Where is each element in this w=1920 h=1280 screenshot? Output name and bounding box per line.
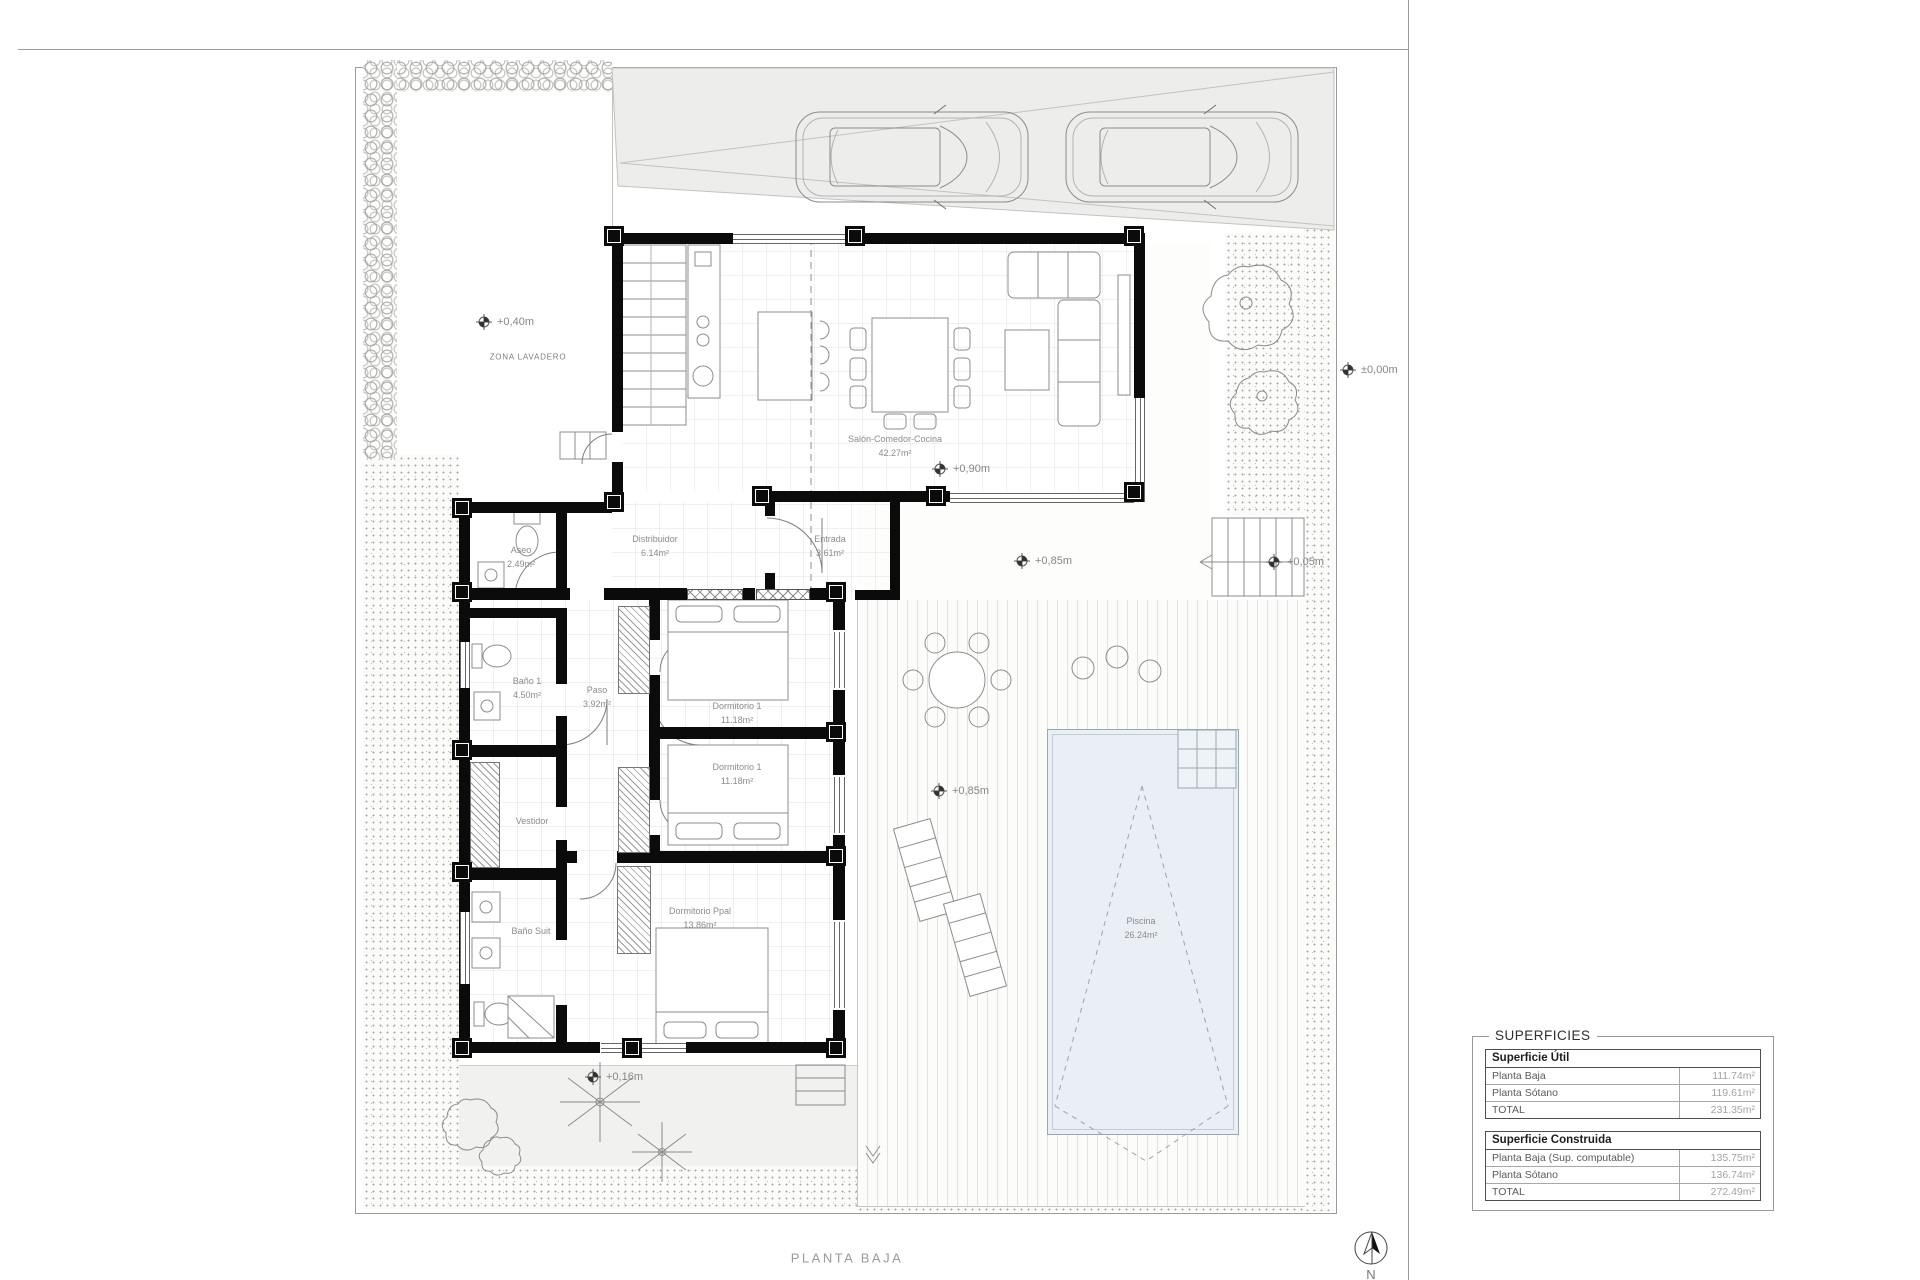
sun-lounger [944,894,1007,997]
room-label-entrada: Entrada3.61m² [814,533,846,561]
room-label-bano1: Baño 14.50m² [513,675,542,703]
driveway [612,68,1334,230]
wardrobe-dorm1 [618,606,650,694]
tv-unit [1118,275,1130,395]
vent-window [756,589,810,600]
benchmark-icon [476,314,492,330]
table-row: Planta Baja (Sup. computable) 135.75m² [1486,1150,1760,1167]
benchmark-icon [585,1069,601,1085]
wardrobe-principal [617,866,651,954]
benchmark-icon [931,783,947,799]
pool-lane-lines [1055,786,1228,1161]
level-marker-terraza: +0,85m [931,783,989,799]
staircase [617,245,686,425]
north-arrow-icon: N [1340,1218,1404,1280]
patio-poufs [1072,646,1161,682]
window-principal-south [601,1043,686,1053]
room-label-dormitorio2: Dormitorio 111.18m² [712,761,761,789]
window-north [733,234,857,244]
level-marker-jardin: +0,16m [585,1069,643,1085]
window-principal-east [834,922,845,1008]
tree-icon [1203,265,1298,434]
table-row: Planta Sótano 136.74m² [1486,1167,1760,1184]
bed-dormitorio-1 [668,600,788,700]
pool-skimmer-icon [866,1146,880,1163]
benchmark-icon [932,461,948,477]
window-dorm2 [834,777,845,833]
superficie-util-box: Superficie Útil Planta Baja 111.74m² Pla… [1485,1049,1761,1119]
exterior-steps-garden [796,1065,845,1105]
level-marker-salon: +0,90m [932,461,990,477]
sheet-title: PLANTA BAJA [791,1251,904,1266]
room-label-banosuit: Baño Suit [511,925,550,939]
room-label-paso: Paso3.92m² [583,684,611,712]
level-marker-porche: +0,85m [1014,553,1072,569]
room-label-principal: Dormitorio Ppal13.86m² [669,905,731,933]
room-label-piscina: Piscina26.24m² [1124,915,1157,943]
dining-table [850,318,970,429]
table-section-header: Superficie Útil [1486,1050,1760,1068]
kitchen-counter [688,245,720,398]
level-marker-lavadero: +0,40m [476,314,534,330]
pool-steps [1178,730,1236,788]
room-label-dormitorio1: Dormitorio 111.18m² [712,700,761,728]
wardrobe-dorm2 [618,767,650,853]
bed-dormitorio-2 [668,745,788,845]
patio-table [903,633,1011,727]
room-label-vestidor: Vestidor [516,815,549,829]
bush-icon [442,1099,521,1175]
table-row: Planta Baja 111.74m² [1486,1068,1760,1085]
wardrobe-vestidor [470,762,500,868]
areas-table: SUPERFICIES Superficie Útil Planta Baja … [1472,1036,1774,1211]
table-row: Planta Sótano 119.61m² [1486,1085,1760,1102]
room-label-distribuidor: Distribuidor6.14m² [632,533,678,561]
sofa [1005,252,1100,426]
areas-table-title: SUPERFICIES [1489,1028,1597,1043]
window-bath1 [460,642,470,688]
level-marker-escalera: +0,05m [1266,554,1324,570]
north-letter: N [1366,1267,1375,1280]
table-section-header: Superficie Construida [1486,1132,1760,1150]
floor-plan-sheet: ZONA LAVADERO Salón-Comedor-Cocina42.27m… [0,0,1920,1280]
superficie-construida-box: Superficie Construida Planta Baja (Sup. … [1485,1131,1761,1201]
bed-principal [656,928,768,1044]
window-south-glass [950,493,1134,503]
table-row: TOTAL 272.49m² [1486,1184,1760,1200]
benchmark-icon [1340,362,1356,378]
vent-window [687,589,743,600]
window-dorm1 [834,632,845,688]
room-label-salon: Salón-Comedor-Cocina42.27m² [848,433,942,461]
kitchen-island [758,312,829,400]
benchmark-icon [1014,553,1030,569]
room-label-aseo: Aseo2.49m² [507,544,535,572]
table-row: TOTAL 231.35m² [1486,1102,1760,1118]
benchmark-icon [1266,554,1282,570]
window-bathsuite [460,912,470,984]
level-marker-calle: ±0,00m [1340,362,1398,378]
zona-lavadero-label: ZONA LAVADERO [490,353,567,362]
